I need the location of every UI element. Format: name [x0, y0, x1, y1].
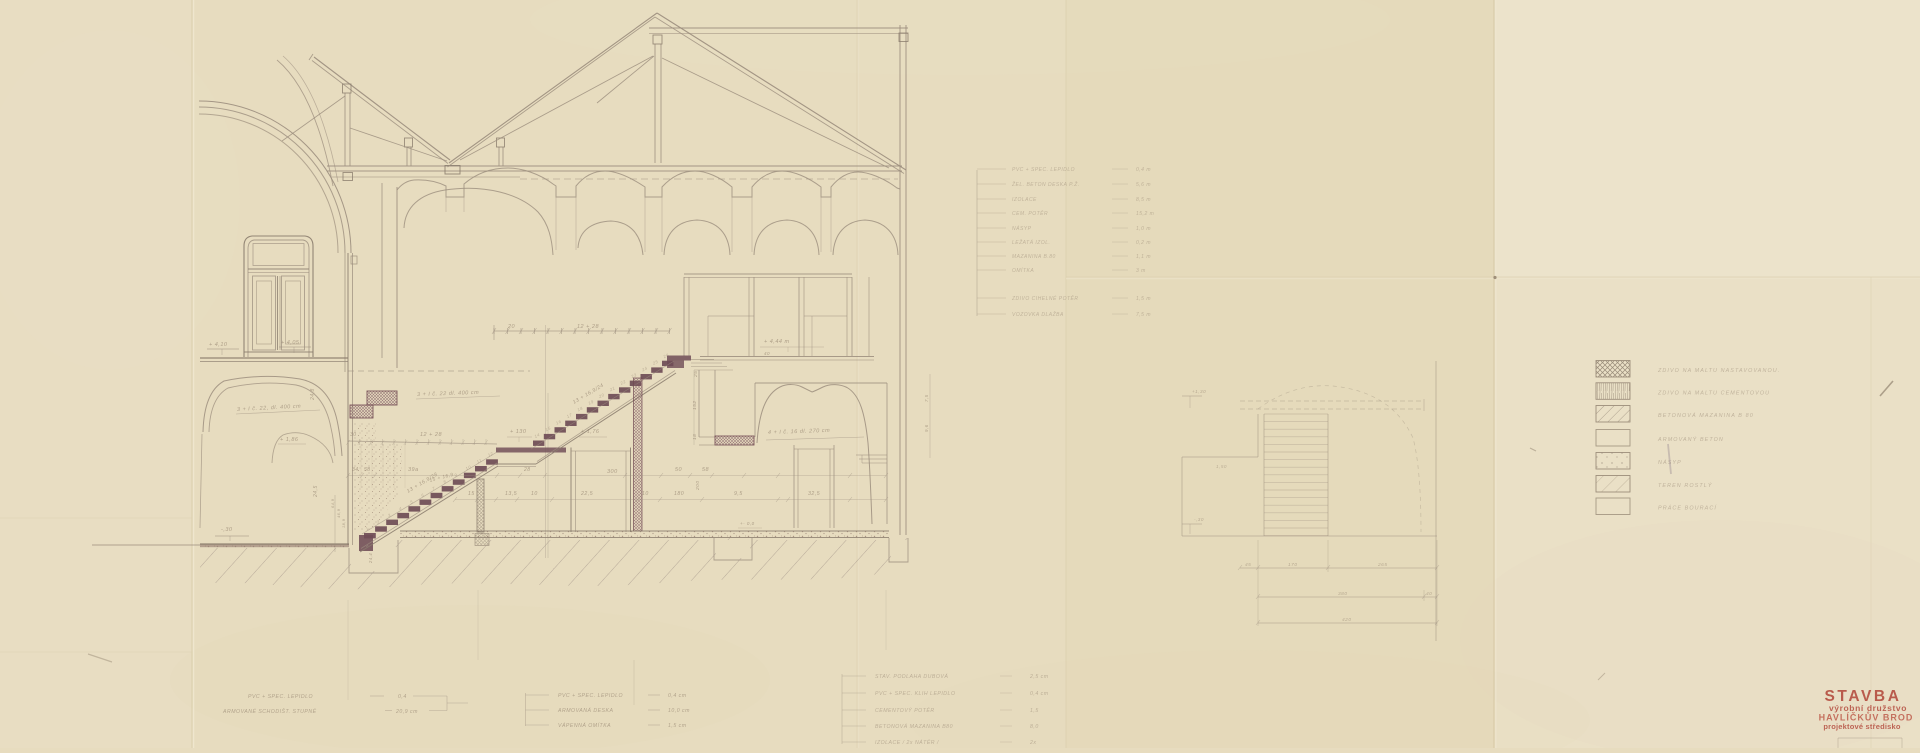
- svg-text:10: 10: [642, 491, 649, 497]
- svg-text:+ 1,86: + 1,86: [280, 437, 299, 443]
- svg-text:projektové středisko: projektové středisko: [1823, 722, 1901, 731]
- svg-text:BETONOVÁ MAZANINA B80: BETONOVÁ MAZANINA B80: [875, 723, 953, 730]
- svg-text:46,9: 46,9: [337, 508, 341, 518]
- svg-text:ZDIVO NA MALTU NASTAVOVANOU.: ZDIVO NA MALTU NASTAVOVANOU.: [1657, 368, 1780, 374]
- svg-text:+1,30: +1,30: [1192, 389, 1206, 394]
- svg-text:300: 300: [607, 469, 618, 475]
- svg-text:2x: 2x: [1029, 740, 1036, 746]
- svg-text:24,4: 24,4: [368, 553, 373, 564]
- svg-text:22,5: 22,5: [580, 491, 593, 497]
- svg-text:IZOLACE / 2x NÁTĚR /: IZOLACE / 2x NÁTĚR /: [875, 738, 939, 746]
- svg-text:5,6 m: 5,6 m: [1136, 182, 1151, 188]
- svg-text:2,5 cm: 2,5 cm: [1029, 674, 1049, 680]
- svg-text:1,5 m: 1,5 m: [1136, 296, 1151, 302]
- svg-text:58: 58: [364, 467, 371, 473]
- svg-text:20,9 cm: 20,9 cm: [395, 709, 418, 715]
- svg-text:18: 18: [692, 434, 698, 440]
- svg-text:-,30: -,30: [1194, 517, 1204, 522]
- svg-text:265: 265: [1377, 562, 1388, 568]
- svg-text:180: 180: [674, 491, 684, 497]
- svg-text:200: 200: [695, 480, 701, 491]
- svg-text:380: 380: [1338, 591, 1348, 597]
- svg-text:výrobní družstvo: výrobní družstvo: [1829, 703, 1907, 713]
- svg-text:34: 34: [352, 467, 359, 473]
- svg-text:PVC + SPEC. LEPIDLO: PVC + SPEC. LEPIDLO: [558, 693, 623, 699]
- svg-text:9,5: 9,5: [734, 491, 743, 497]
- svg-text:PVC + SPEC. LEPIDLO: PVC + SPEC. LEPIDLO: [1012, 167, 1075, 173]
- svg-text:0,4 m: 0,4 m: [1136, 167, 1151, 173]
- svg-text:VOZOVKA DLAŽBA: VOZOVKA DLAŽBA: [1012, 310, 1064, 318]
- svg-text:OMÍTKA: OMÍTKA: [1012, 267, 1034, 274]
- svg-text:9,6: 9,6: [924, 424, 929, 432]
- svg-text:1,5: 1,5: [1030, 708, 1039, 714]
- svg-text:+ 4,44 m: + 4,44 m: [764, 339, 790, 345]
- svg-text:+- 0,0: +- 0,0: [740, 521, 755, 526]
- svg-text:7,5 m: 7,5 m: [1136, 312, 1151, 318]
- svg-text:32,5: 32,5: [808, 491, 820, 497]
- svg-text:IZOLACE: IZOLACE: [1012, 197, 1037, 203]
- svg-text:LEŽATÁ IZOL.: LEŽATÁ IZOL.: [1012, 238, 1050, 246]
- svg-text:+ 4,05: + 4,05: [281, 340, 300, 346]
- svg-text:ZDIVO NA MALTU CEMENTOVOU: ZDIVO NA MALTU CEMENTOVOU: [1657, 390, 1770, 396]
- svg-text:30: 30: [350, 432, 357, 438]
- svg-text:0,4 cm: 0,4 cm: [1030, 691, 1049, 697]
- svg-text:40: 40: [1426, 591, 1432, 597]
- svg-text:PVC + SPEC. KLIH LEPIDLO: PVC + SPEC. KLIH LEPIDLO: [875, 691, 955, 697]
- svg-text:HAVLÍČKŮV BROD: HAVLÍČKŮV BROD: [1819, 712, 1914, 723]
- svg-text:0,2 m: 0,2 m: [1136, 240, 1151, 246]
- svg-text:15: 15: [468, 491, 475, 497]
- svg-text:13,5: 13,5: [505, 491, 517, 497]
- svg-text:10,0 cm: 10,0 cm: [668, 708, 690, 714]
- svg-text:1,1 m: 1,1 m: [1136, 254, 1151, 260]
- svg-text:18,9: 18,9: [342, 518, 346, 528]
- svg-text:1,50: 1,50: [1216, 464, 1227, 469]
- svg-text:20: 20: [507, 324, 516, 330]
- svg-text:12 + 28: 12 + 28: [577, 324, 599, 330]
- svg-text:170: 170: [1288, 562, 1298, 568]
- svg-text:24,8: 24,8: [310, 388, 316, 401]
- svg-text:+ 1,76: + 1,76: [581, 429, 600, 435]
- svg-text:PVC + SPEC. LEPIDLO: PVC + SPEC. LEPIDLO: [248, 694, 313, 700]
- svg-text:0,4 cm: 0,4 cm: [668, 693, 687, 699]
- svg-text:39a: 39a: [408, 467, 419, 473]
- svg-text:0,4: 0,4: [398, 694, 407, 700]
- svg-text:12 + 28: 12 + 28: [420, 432, 442, 438]
- svg-text:ŽEL. BETON DESKA P.Ž.: ŽEL. BETON DESKA P.Ž.: [1011, 180, 1080, 188]
- svg-text:TEREN ROSTLÝ: TEREN ROSTLÝ: [1658, 482, 1713, 489]
- svg-text:+ 4,10: + 4,10: [209, 342, 228, 348]
- svg-text:PRÁCE BOURACÍ: PRÁCE BOURACÍ: [1658, 505, 1717, 512]
- svg-text:ARMOVANÁ DESKA: ARMOVANÁ DESKA: [557, 707, 613, 714]
- svg-text:45: 45: [1245, 562, 1251, 568]
- svg-text:420: 420: [1342, 617, 1352, 623]
- svg-text:NÁSYP: NÁSYP: [1012, 225, 1032, 232]
- svg-text:+ 130: + 130: [510, 429, 527, 435]
- svg-text:58: 58: [702, 467, 710, 473]
- svg-text:VÁPENNÁ OMÍTKA: VÁPENNÁ OMÍTKA: [558, 722, 611, 729]
- svg-text:152: 152: [692, 400, 698, 410]
- svg-text:50: 50: [675, 467, 683, 473]
- svg-text:64,9: 64,9: [331, 498, 335, 508]
- svg-text:28: 28: [523, 467, 531, 473]
- svg-text:10: 10: [531, 491, 538, 497]
- svg-text:-,30: -,30: [221, 527, 233, 533]
- svg-text:CEM. POTĚR: CEM. POTĚR: [1012, 209, 1048, 217]
- svg-text:CEMENTOVÝ POTĚR: CEMENTOVÝ POTĚR: [875, 706, 935, 714]
- svg-text:40: 40: [764, 351, 770, 356]
- svg-text:1,0 m: 1,0 m: [1136, 226, 1151, 232]
- svg-text:7,5: 7,5: [924, 394, 929, 402]
- svg-text:3 m: 3 m: [1136, 268, 1146, 274]
- svg-text:ARMOVANÉ SCHODIŠT. STUPNĚ: ARMOVANÉ SCHODIŠT. STUPNĚ: [222, 707, 317, 715]
- svg-text:MAZANINA B.80: MAZANINA B.80: [1012, 254, 1056, 260]
- svg-text:STAV. PODLAHA DUBOVÁ: STAV. PODLAHA DUBOVÁ: [875, 673, 948, 680]
- svg-text:15,2 m: 15,2 m: [1136, 211, 1154, 217]
- svg-text:8,0: 8,0: [1030, 724, 1039, 730]
- svg-text:8,5 m: 8,5 m: [1136, 197, 1151, 203]
- svg-text:ZDIVO CIHELNÉ POTĚR: ZDIVO CIHELNÉ POTĚR: [1011, 294, 1078, 302]
- svg-text:BETONOVÁ MAZANINA B 80: BETONOVÁ MAZANINA B 80: [1658, 412, 1754, 419]
- svg-text:24,5: 24,5: [313, 485, 319, 498]
- svg-text:ARMOVANÝ BETON: ARMOVANÝ BETON: [1657, 436, 1724, 443]
- svg-text:1,5 cm: 1,5 cm: [668, 723, 687, 729]
